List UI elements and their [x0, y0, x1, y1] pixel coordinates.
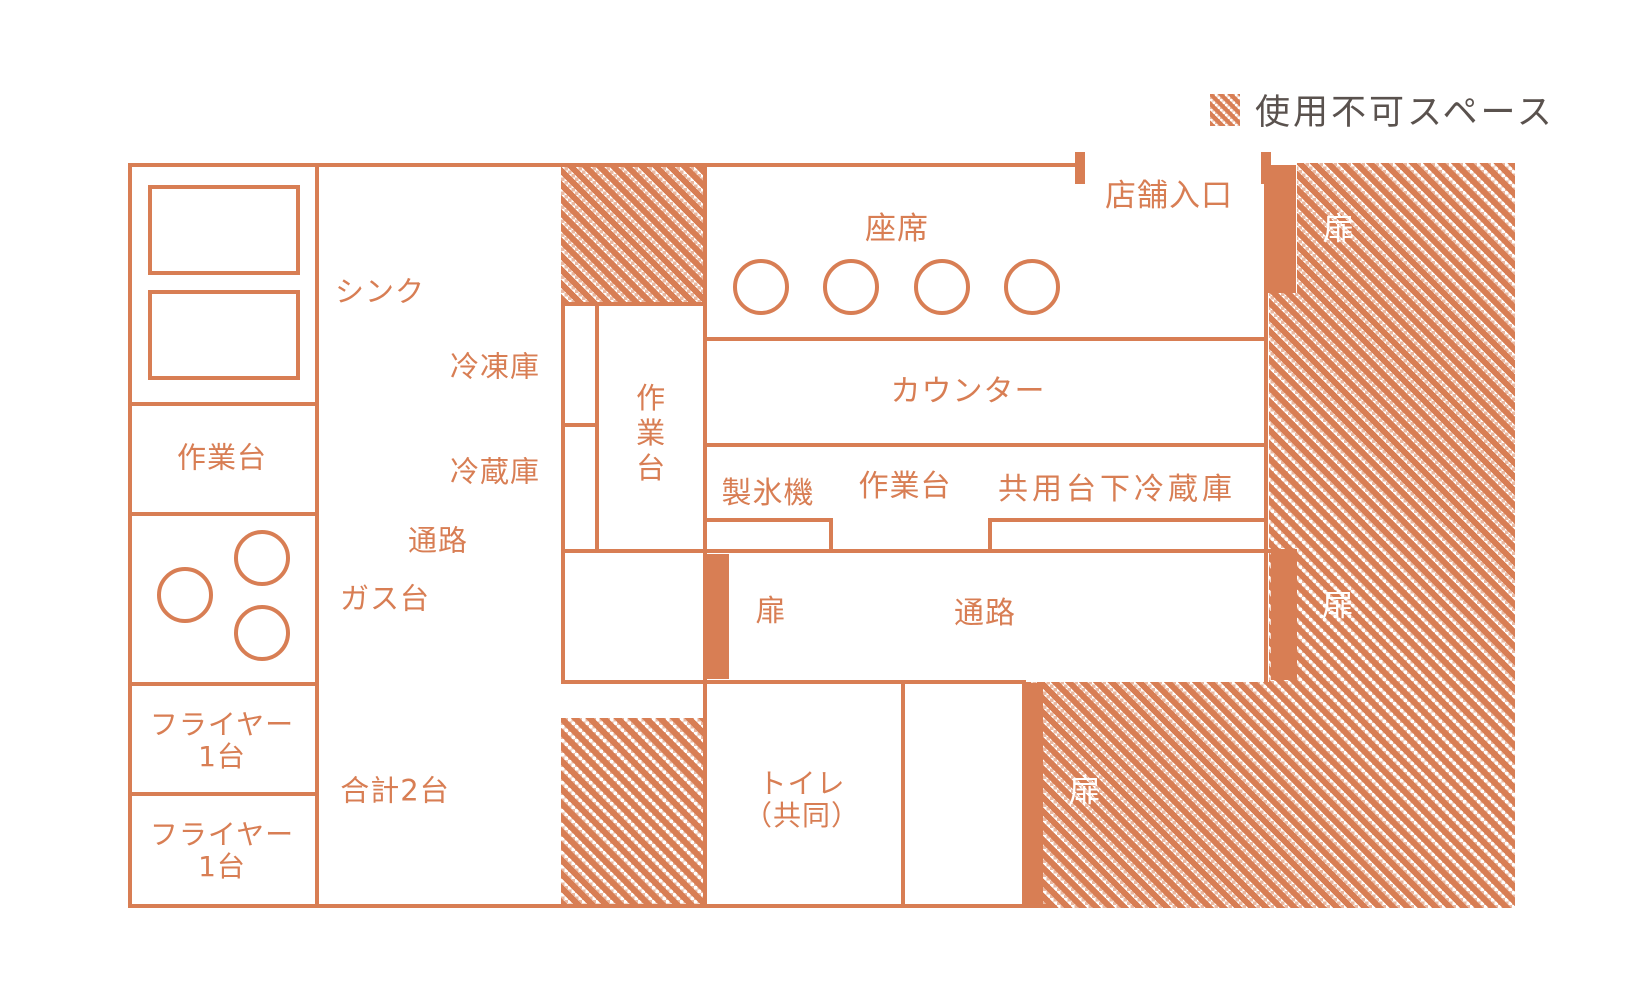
wall-top — [128, 163, 1080, 167]
unusable-space-swatch-icon — [1210, 94, 1240, 126]
label-door-bottom: 扉 — [1068, 773, 1101, 810]
wall-freezer-column-right — [595, 302, 599, 552]
wall-left — [128, 163, 132, 908]
label-sink: シンク — [335, 275, 425, 308]
wall-main-vertical — [703, 163, 707, 908]
gas-burner-circle — [234, 605, 290, 661]
divider-gas-fryer1 — [128, 682, 319, 686]
seat-circle — [733, 259, 789, 315]
divider-sink-worktable — [128, 402, 319, 406]
floor-plan-canvas: 使用不可スペース シンク 冷凍庫 冷蔵庫 通路 ガス台 — [0, 0, 1640, 1000]
label-corridor: 通路 — [954, 597, 1016, 632]
label-shared-under-counter-fridge: 共用台下冷蔵庫 — [998, 473, 1236, 508]
label-total-units: 合計2台 — [340, 774, 449, 807]
label-fridge: 冷蔵庫 — [450, 455, 540, 488]
wall-left-column-right — [315, 163, 319, 908]
fryer-1-line2: 1台 — [198, 740, 246, 773]
hatch-area-middle-bottom — [561, 718, 703, 906]
door-band-corridor-right — [1271, 549, 1297, 680]
seat-circle — [1004, 259, 1060, 315]
legend-label: 使用不可スペース — [1255, 84, 1555, 135]
label-door-corridor: 扉 — [756, 595, 787, 630]
ice-machine-box-right — [829, 518, 833, 553]
hatch-area-middle-top — [561, 167, 703, 302]
label-toilet: トイレ （共同） — [744, 768, 860, 832]
label-seats: 座席 — [865, 212, 929, 248]
wall-equipment-bottom — [561, 549, 1272, 553]
wall-bottom — [128, 904, 1050, 908]
label-work-table-left: 作業台 — [177, 441, 267, 474]
divider-seats-counter — [703, 337, 1268, 341]
door-band-bottom — [1022, 683, 1043, 908]
divider-toilet-right — [901, 682, 905, 908]
toilet-line2: （共同） — [744, 799, 860, 832]
entrance-tick-left — [1075, 152, 1085, 184]
divider-worktable-gas — [128, 512, 319, 516]
sink-basin-bottom — [148, 290, 300, 380]
fryer-1-line1: フライヤー — [150, 708, 294, 741]
legend: 使用不可スペース — [1210, 84, 1555, 135]
gas-burner-circle — [234, 530, 290, 586]
label-work-table-center: 作業台 — [631, 383, 664, 488]
shared-fridge-box-left — [988, 518, 992, 553]
toilet-line1: トイレ — [758, 767, 845, 800]
ice-machine-box-bottom — [703, 518, 833, 522]
divider-counter-equipment — [703, 443, 1268, 447]
wall-mid-column-left — [561, 302, 565, 682]
label-fryer-2: フライヤー 1台 — [150, 819, 294, 883]
label-aisle-kitchen: 通路 — [408, 524, 468, 557]
seat-circle — [914, 259, 970, 315]
label-shop-entrance: 店舗入口 — [1105, 179, 1233, 215]
wall-mid-column-top — [561, 302, 707, 306]
shared-fridge-box-bottom — [988, 518, 1268, 522]
fryer-2-line1: フライヤー — [150, 818, 294, 851]
sink-basin-top — [148, 185, 300, 275]
label-door-corridor-right: 扉 — [1321, 587, 1354, 624]
label-door-top-right: 扉 — [1322, 211, 1355, 248]
seat-circle — [823, 259, 879, 315]
door-band-corridor-left — [705, 554, 729, 679]
label-freezer: 冷凍庫 — [450, 350, 540, 383]
divider-fryer1-fryer2 — [128, 792, 319, 796]
label-counter: カウンター — [891, 375, 1046, 410]
divider-freezer-fridge — [561, 423, 599, 427]
wall-corridor-bottom — [561, 680, 1026, 684]
gas-burner-circle — [157, 567, 213, 623]
label-ice-machine: 製氷機 — [722, 477, 815, 512]
label-gas-stove: ガス台 — [340, 582, 430, 615]
fryer-2-line2: 1台 — [198, 850, 246, 883]
door-band-top-right — [1268, 165, 1296, 293]
label-work-table-right: 作業台 — [859, 470, 952, 505]
label-fryer-1: フライヤー 1台 — [150, 709, 294, 773]
